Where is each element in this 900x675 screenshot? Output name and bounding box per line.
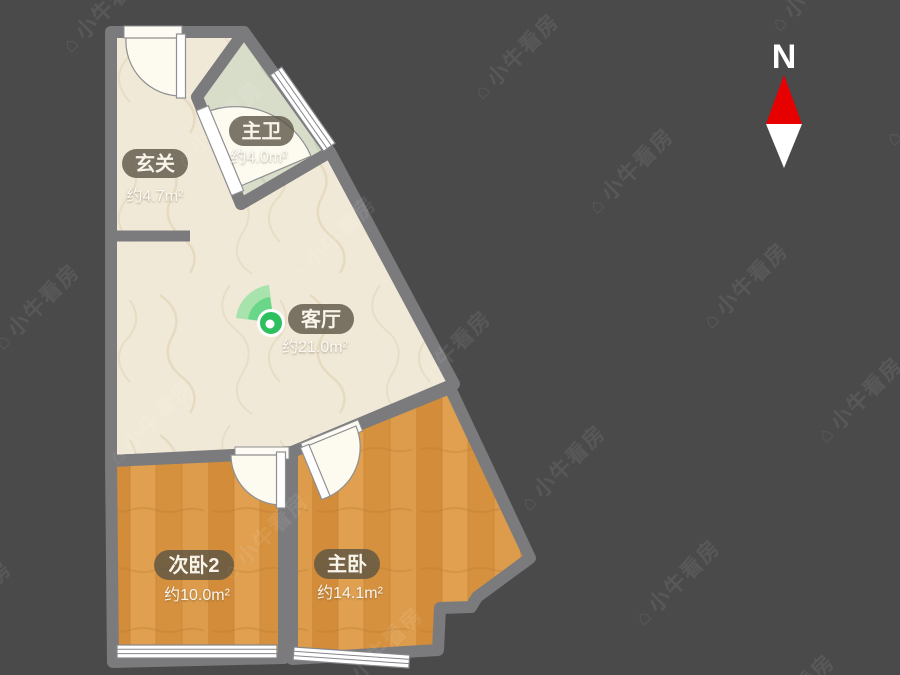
- watermark-overlay: [0, 0, 900, 675]
- floorplan-screenshot: ⌂小牛看房: [0, 0, 900, 675]
- floorplan-canvas: ⌂小牛看房: [0, 0, 900, 675]
